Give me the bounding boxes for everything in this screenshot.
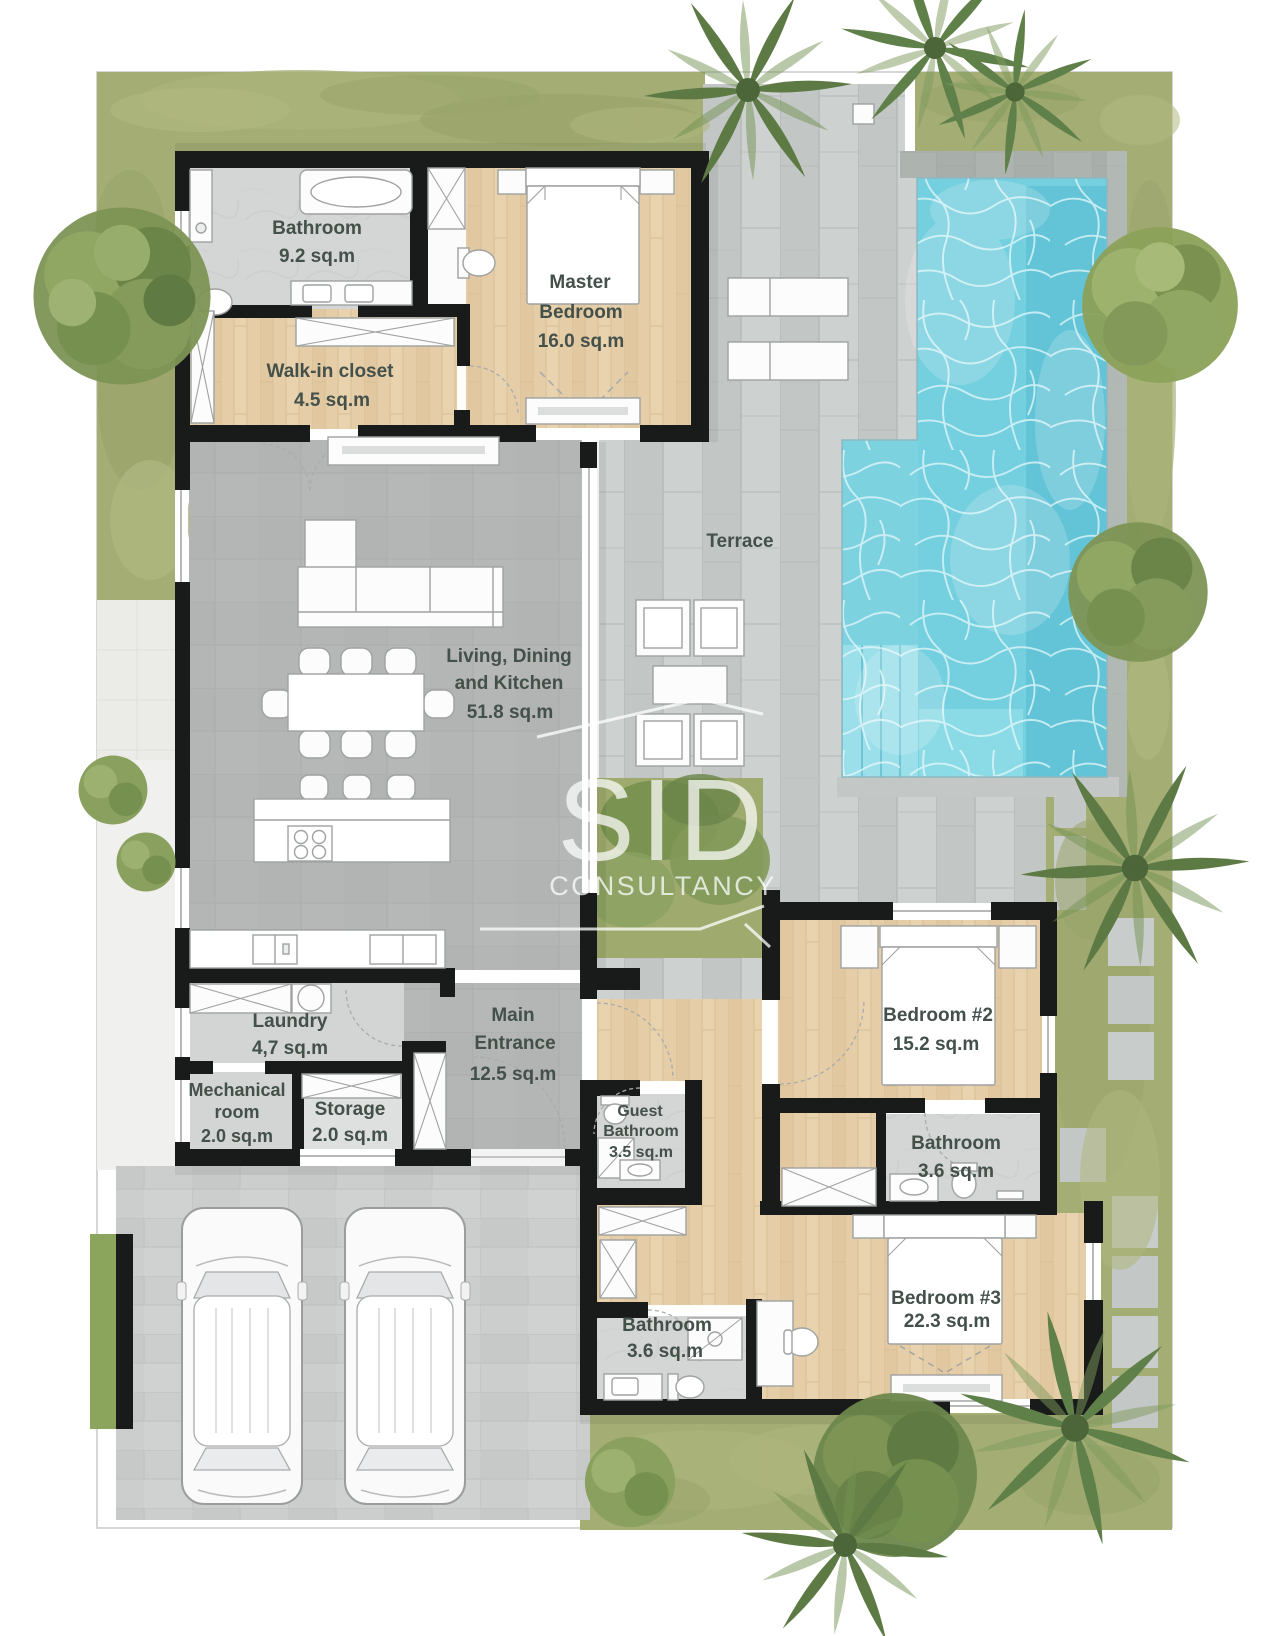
svg-text:3.6 sq.m: 3.6 sq.m	[918, 1161, 994, 1182]
svg-text:Master: Master	[549, 272, 611, 293]
svg-text:SID: SID	[557, 755, 768, 885]
svg-text:3.6 sq.m: 3.6 sq.m	[627, 1341, 703, 1362]
svg-text:Bathroom: Bathroom	[603, 1123, 679, 1140]
svg-text:CONSULTANCY: CONSULTANCY	[549, 871, 777, 901]
svg-text:Storage: Storage	[315, 1099, 386, 1120]
svg-text:and Kitchen: and Kitchen	[455, 673, 564, 694]
svg-text:Entrance: Entrance	[474, 1033, 555, 1054]
svg-text:3.5 sq.m: 3.5 sq.m	[609, 1144, 673, 1161]
svg-text:12.5 sq.m: 12.5 sq.m	[470, 1064, 557, 1085]
svg-text:Laundry: Laundry	[253, 1011, 328, 1032]
svg-text:Main: Main	[491, 1005, 534, 1026]
svg-text:Mechanical: Mechanical	[188, 1080, 285, 1100]
svg-text:2.0 sq.m: 2.0 sq.m	[312, 1125, 388, 1146]
svg-text:4,7 sq.m: 4,7 sq.m	[252, 1038, 328, 1059]
svg-text:Bathroom: Bathroom	[272, 218, 362, 239]
svg-text:Bedroom #3: Bedroom #3	[891, 1288, 1001, 1309]
svg-text:2.0 sq.m: 2.0 sq.m	[201, 1126, 273, 1146]
svg-text:51.8 sq.m: 51.8 sq.m	[467, 702, 554, 723]
svg-text:22.3 sq.m: 22.3 sq.m	[904, 1311, 991, 1332]
svg-text:16.0 sq.m: 16.0 sq.m	[538, 331, 625, 352]
svg-text:room: room	[215, 1102, 260, 1122]
svg-text:4.5 sq.m: 4.5 sq.m	[294, 390, 370, 411]
svg-text:Bedroom: Bedroom	[539, 302, 622, 323]
svg-text:Living, Dining: Living, Dining	[446, 646, 572, 667]
svg-text:Bathroom: Bathroom	[622, 1315, 712, 1336]
svg-text:15.2 sq.m: 15.2 sq.m	[893, 1034, 980, 1055]
svg-text:Walk-in closet: Walk-in closet	[266, 361, 394, 382]
svg-text:9.2 sq.m: 9.2 sq.m	[279, 246, 355, 267]
svg-text:Guest: Guest	[617, 1103, 663, 1120]
svg-text:Bathroom: Bathroom	[911, 1133, 1001, 1154]
svg-text:Bedroom #2: Bedroom #2	[883, 1005, 993, 1026]
svg-text:Terrace: Terrace	[706, 531, 773, 552]
